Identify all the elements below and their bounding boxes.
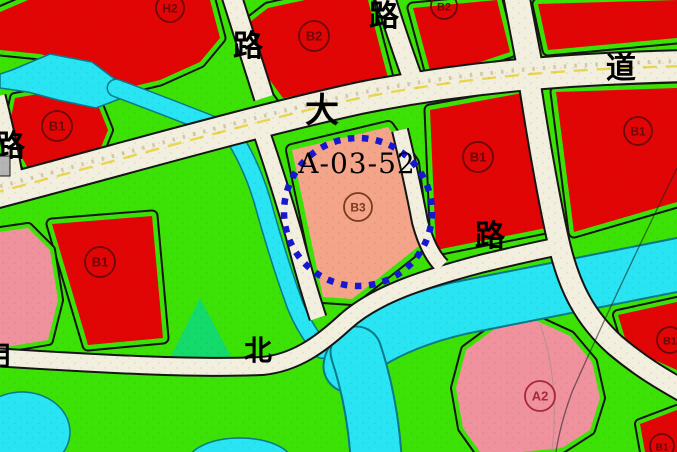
road-name-label: 路 — [233, 29, 264, 64]
zoning-map[interactable]: H2B2B2B1B1B1B1B3A2B1B1路路大道路路北月 A-03-52 — [0, 0, 677, 452]
road-name-label: 路 — [0, 129, 26, 164]
svg-text:B1: B1 — [470, 150, 487, 165]
road-name-label: 月 — [0, 342, 13, 372]
svg-text:B1: B1 — [92, 255, 109, 270]
parcel-b1-right-mid[interactable] — [556, 88, 677, 232]
parcel-pink-left[interactable] — [0, 228, 58, 348]
svg-text:B1: B1 — [656, 443, 669, 452]
svg-text:H2: H2 — [162, 2, 178, 16]
water-stream-bottom — [356, 352, 376, 452]
svg-text:B3: B3 — [350, 201, 366, 215]
road-name-label: 道 — [606, 51, 636, 86]
svg-text:B1: B1 — [663, 336, 677, 348]
highlighted-parcel-code[interactable]: A-03-52 — [297, 147, 415, 180]
north-road-3 — [516, 0, 529, 62]
parcel-b2-right[interactable] — [538, 0, 677, 50]
road-name-label: 路 — [475, 219, 506, 254]
svg-text:B2: B2 — [437, 2, 451, 14]
svg-text:B2: B2 — [306, 29, 323, 44]
road-name-label: 北 — [244, 334, 272, 367]
zoning-map-canvas: H2B2B2B1B1B1B1B3A2B1B1路路大道路路北月 A-03-52 — [0, 0, 677, 452]
svg-text:A2: A2 — [532, 389, 549, 404]
road-name-label: 大 — [305, 91, 339, 131]
svg-text:B1: B1 — [630, 125, 646, 139]
road-name-label: 路 — [369, 0, 400, 34]
svg-text:B1: B1 — [49, 119, 66, 134]
